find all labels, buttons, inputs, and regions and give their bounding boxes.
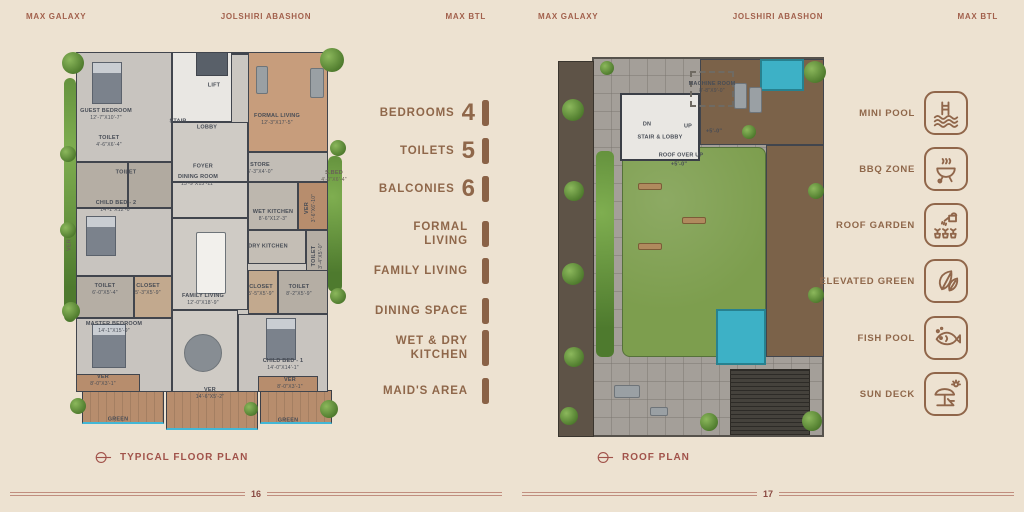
sofa: [310, 68, 324, 98]
room-label: VER8'-0"X3'-1": [90, 374, 115, 388]
tree: [70, 398, 86, 414]
room-label: DRY KITCHEN: [248, 243, 287, 250]
feature-bar: [482, 138, 489, 164]
room-label: CHILD BED - 214'-1"X12'-0": [96, 200, 137, 214]
tree: [244, 402, 258, 416]
room-lift: [196, 52, 228, 76]
tree: [562, 99, 584, 121]
watering-plants-icon: [924, 203, 968, 247]
room-label: VER14'-6"X5'-2": [196, 387, 224, 401]
feature-bar: [482, 298, 489, 324]
brand-left: MAX GALAXY: [538, 12, 598, 21]
room-label: TOILET4'-6"X6'-4": [96, 135, 121, 149]
room-label: TOILET: [116, 169, 137, 176]
plan-marker-icon: [95, 451, 112, 464]
right-page-footer: 17: [522, 489, 1014, 499]
amenity-roof-garden: ROOF GARDEN: [836, 203, 968, 247]
room-label: FOYER: [193, 163, 213, 170]
feature-wet-dry-kitchen: WET & DRY KITCHEN: [372, 330, 489, 366]
bed: [86, 216, 116, 256]
footer-rule: [267, 492, 502, 496]
roof-label: +5'-0": [706, 128, 722, 135]
bed: [266, 318, 296, 360]
right-page-header: MAX GALAXY JOLSHIRI ABASHON MAX BTL: [512, 12, 1024, 21]
family-rug: [184, 334, 222, 372]
hedge-strip: [596, 151, 614, 357]
roof-label: STAIR & LOBBY: [638, 134, 683, 141]
tree: [330, 140, 346, 156]
amenity-fish-pool: FISH POOL: [858, 316, 969, 360]
sun-umbrella-icon: [924, 372, 968, 416]
room-label: FORMAL LIVING12'-3"X17'-5": [254, 113, 300, 127]
tree: [808, 287, 824, 303]
brand-right: MAX BTL: [446, 12, 486, 21]
room-label: STAIR: [169, 118, 186, 125]
tree: [600, 61, 614, 75]
room-label: DINING ROOM13'-9"X15'-11": [178, 174, 218, 188]
plan-marker-icon: [597, 451, 614, 464]
room-label: TOILET3'-4"X5'-0": [311, 243, 325, 268]
roof-label: UP: [684, 123, 692, 130]
tree: [742, 125, 756, 139]
roof-label: MACHINE ROOM8'-8"X9'-0": [689, 81, 736, 95]
room-label: LIFT: [208, 82, 220, 89]
lawn-bench: [682, 217, 706, 224]
typical-floor-plan: GUEST BEDROOM12'-7"X10'-7" TOILET4'-6"X6…: [62, 50, 348, 442]
feature-toilets: TOILETS5: [400, 138, 489, 164]
room-label: FAMILY LIVING12'-0"X18'-9": [182, 293, 224, 307]
feature-family-living: FAMILY LIVING: [374, 258, 489, 284]
lounge-chair: [734, 83, 747, 109]
room-label: CHILD BED - 114'-0"X14'-1": [263, 358, 304, 372]
amenity-elevated-green: ELEVATED GREEN: [820, 259, 969, 303]
tree: [564, 347, 584, 367]
brand-right: MAX BTL: [958, 12, 998, 21]
left-page-header: MAX GALAXY JOLSHIRI ABASHON MAX BTL: [0, 12, 512, 21]
sofa: [256, 66, 268, 94]
room-label: TOILET8'-2"X5'-9": [286, 284, 311, 298]
amenity-bbq-zone: BBQ ZONE: [859, 147, 968, 191]
outdoor-furniture: [650, 407, 668, 416]
tree: [802, 411, 822, 431]
feature-bar: [482, 258, 489, 284]
bbq-grill-icon: [924, 147, 968, 191]
lounge-chair: [749, 87, 762, 113]
room-label: CLOSET5'-5"X5'-9": [248, 284, 273, 298]
tree: [564, 181, 584, 201]
tree: [320, 48, 344, 72]
footer-rule: [522, 492, 757, 496]
tree: [808, 183, 824, 199]
lawn-bench: [638, 243, 662, 250]
footer-rule: [779, 492, 1014, 496]
room-label: S.BED4'-0"X6'-4": [321, 170, 346, 184]
brochure-spread: MAX GALAXY JOLSHIRI ABASHON MAX BTL MAX …: [0, 0, 1024, 512]
tree: [60, 146, 76, 162]
mini-pool: [760, 59, 804, 91]
roof-plan-caption: ROOF PLAN: [597, 451, 690, 464]
feature-bar: [482, 100, 489, 126]
footer-rule: [10, 492, 245, 496]
outdoor-furniture: [614, 385, 640, 398]
fish-pool: [716, 309, 766, 365]
slatted-deck: [730, 369, 810, 435]
tree: [320, 400, 338, 418]
left-page-footer: 16: [10, 489, 502, 499]
room-label: GREEN: [278, 417, 299, 424]
feature-balconies: BALCONIES6: [379, 176, 489, 202]
floor-plan-caption: TYPICAL FLOOR PLAN: [95, 451, 248, 464]
project-name: JOLSHIRI ABASHON: [221, 12, 311, 21]
feature-bedrooms: BEDROOMS4: [380, 100, 489, 126]
fish-icon: [924, 316, 968, 360]
tree: [560, 407, 578, 425]
room-label: VER: [66, 239, 73, 251]
roof-label: +5'-0": [671, 161, 687, 168]
feature-bar: [482, 221, 489, 247]
room-label: MASTER BEDROOM14'-1"X15'-9": [86, 321, 142, 335]
feature-bar: [482, 176, 489, 202]
room-label: VER8'-0"X3'-1": [277, 377, 302, 391]
page-number: 16: [251, 489, 261, 499]
room-label: STORE5'-3"X4'-0": [247, 162, 272, 176]
pool-ladder-icon: [924, 91, 968, 135]
tree: [330, 288, 346, 304]
tree: [804, 61, 826, 83]
brand-left: MAX GALAXY: [26, 12, 86, 21]
right-wood-deck: [766, 145, 824, 357]
feature-maids-area: MAID'S AREA: [383, 378, 489, 404]
room-label: TOILET6'-0"X5'-4": [92, 283, 117, 297]
page-number: 17: [763, 489, 773, 499]
room-label: LOBBY: [197, 124, 217, 131]
roof-label: ROOF OVER UP: [659, 152, 704, 159]
tree: [60, 222, 76, 238]
tree: [562, 263, 584, 285]
room-guest-bedroom: [76, 52, 172, 162]
roof-plan: DN STAIR & LOBBY UP MACHINE ROOM8'-8"X9'…: [558, 55, 832, 440]
tree: [62, 302, 80, 320]
dining-table: [196, 232, 226, 294]
stair-treads: [624, 97, 658, 157]
tree: [62, 52, 84, 74]
planter-strip: [64, 78, 76, 322]
feature-formal-living: FORMAL LIVING: [372, 220, 489, 249]
room-label: GREEN: [108, 416, 129, 423]
bed: [92, 62, 122, 104]
room-label: VER3'-6"X6'-10": [304, 194, 318, 222]
project-name: JOLSHIRI ABASHON: [733, 12, 823, 21]
room-label: WET KITCHEN8'-6"X12'-3": [253, 209, 293, 223]
roof-label: DN: [643, 121, 651, 128]
feature-dining-space: DINING SPACE: [375, 298, 489, 324]
feature-bar: [482, 378, 489, 404]
feature-bar: [482, 330, 489, 366]
leaves-icon: [924, 259, 968, 303]
amenity-sun-deck: SUN DECK: [860, 372, 968, 416]
lawn-bench: [638, 183, 662, 190]
room-label: GUEST BEDROOM12'-7"X10'-7": [80, 108, 132, 122]
room-label: CLOSET5'-3"X5'-9": [135, 283, 160, 297]
amenity-mini-pool: MINI POOL: [859, 91, 968, 135]
tree: [700, 413, 718, 431]
